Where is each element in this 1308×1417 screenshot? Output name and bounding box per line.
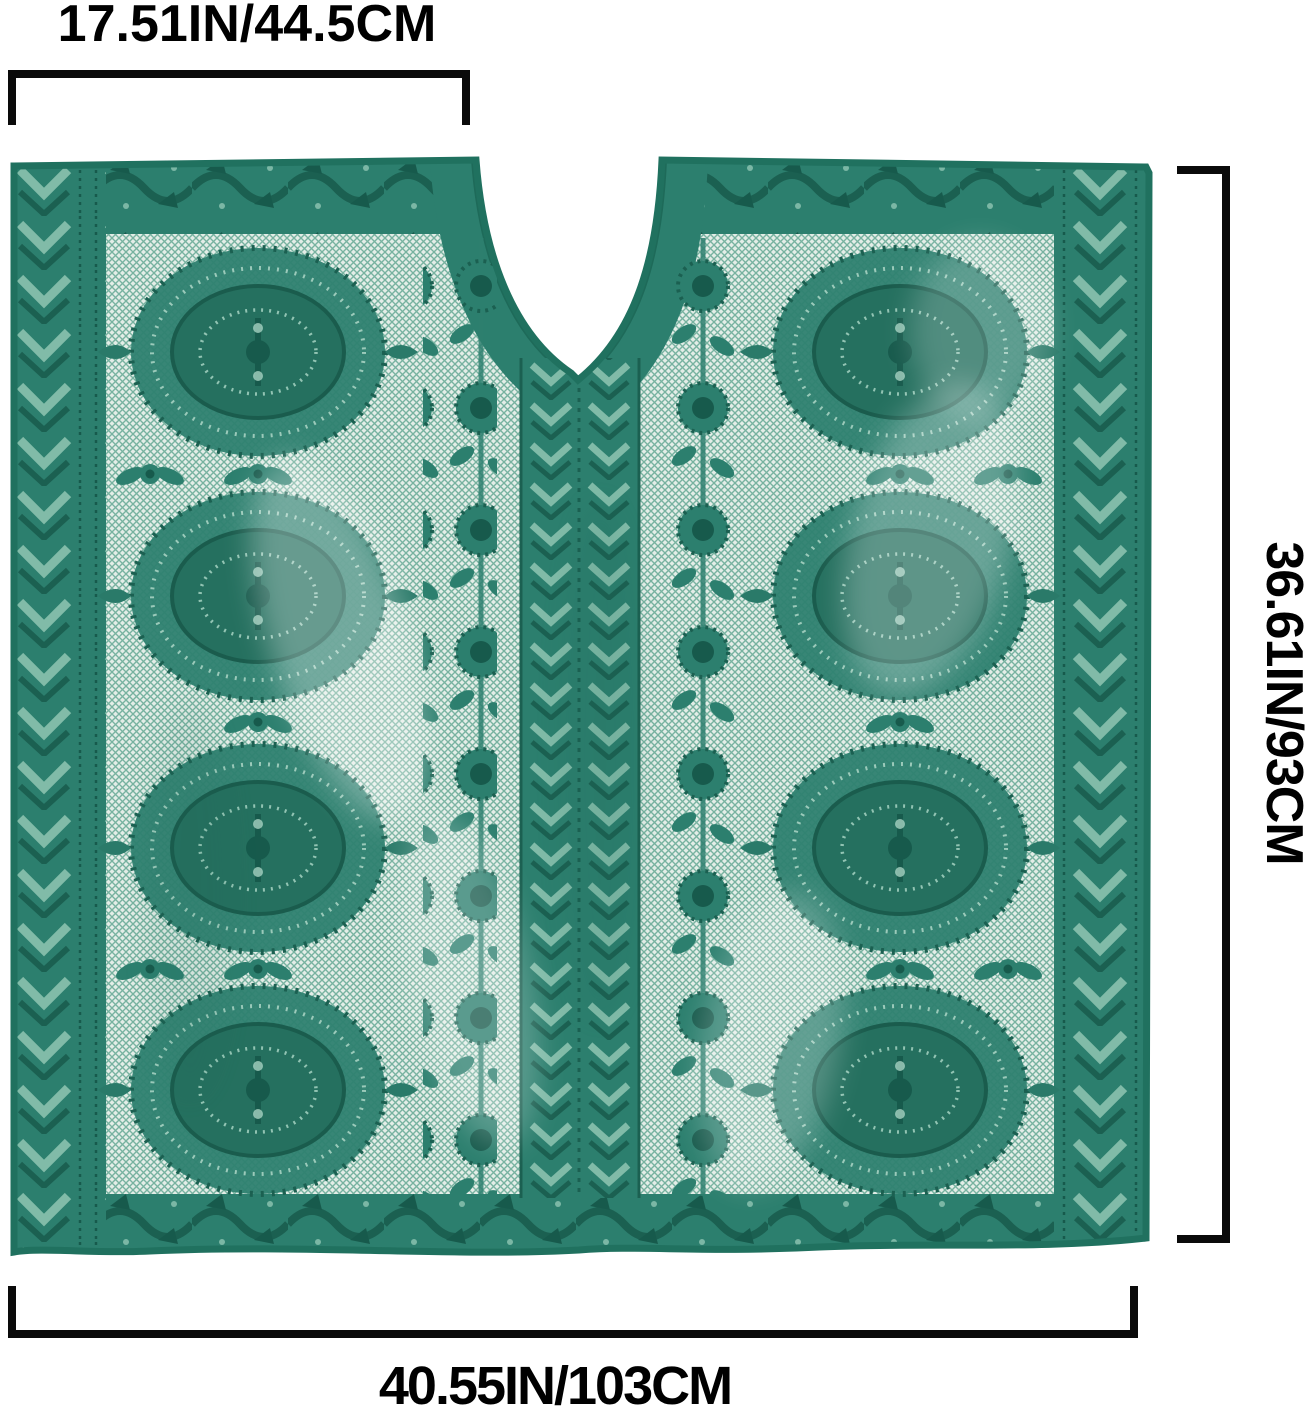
bottom-width-label: 40.55IN/103CM: [305, 1356, 805, 1416]
side-height-label: 36.61IN/93CM: [1258, 453, 1308, 953]
product-dimension-diagram: 17.51IN/44.5CM 36.61IN/93CM 40.55IN/103C…: [0, 0, 1308, 1417]
top-width-bracket: [8, 70, 470, 125]
bottom-width-bracket: [8, 1286, 1138, 1338]
top-width-label: 17.51IN/44.5CM: [0, 0, 494, 54]
side-height-bracket: [1177, 166, 1230, 1243]
right-border-column: [1054, 158, 1146, 1258]
left-border-column: [14, 158, 106, 1258]
neckline-trim: [476, 160, 662, 380]
poncho-graphic: [0, 0, 1308, 1417]
top-border-band: [14, 158, 1146, 234]
